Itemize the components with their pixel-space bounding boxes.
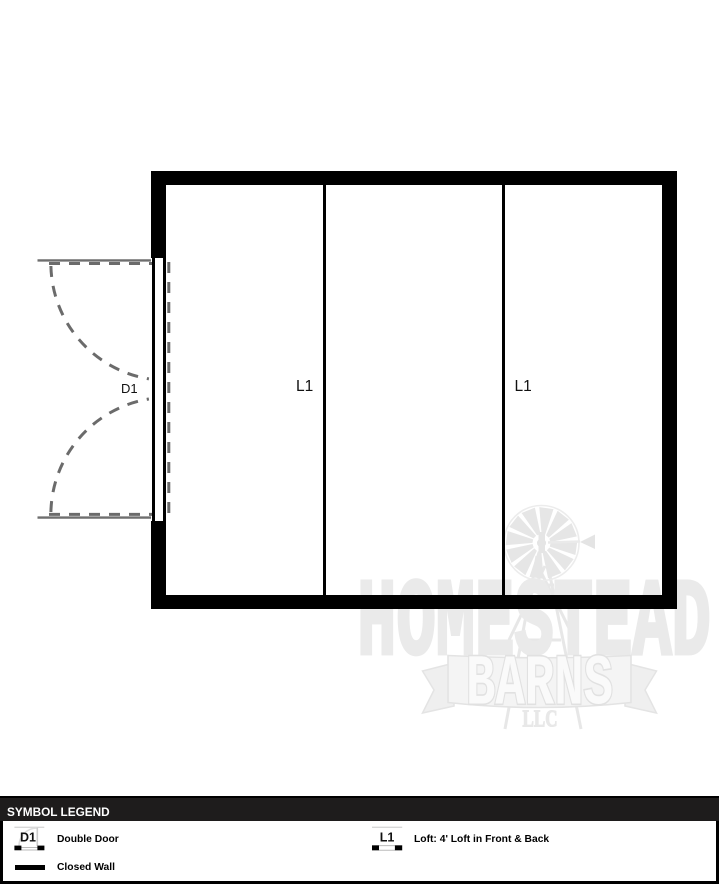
svg-text:L1: L1 (380, 831, 395, 845)
svg-text:D1: D1 (20, 831, 36, 845)
